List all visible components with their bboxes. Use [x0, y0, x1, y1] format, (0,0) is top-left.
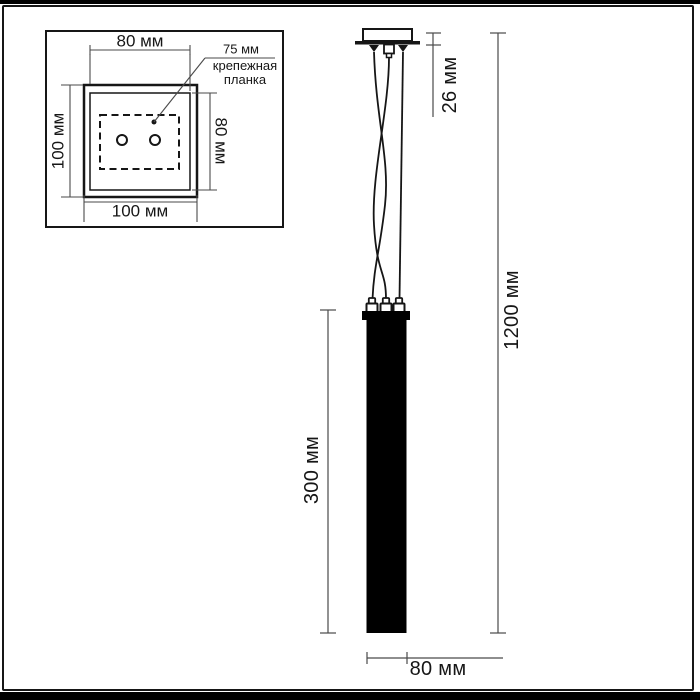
suspension-wires [373, 52, 404, 299]
canopy-height-label: 26 мм [440, 57, 460, 114]
plate-top-width-label: 80 мм [116, 33, 163, 50]
screw-hole-left [117, 135, 127, 145]
plate-left-height-label: 100 мм [50, 113, 67, 169]
lamp-shade-cylinder [362, 311, 410, 633]
shade-width-label: 80 мм [410, 659, 467, 679]
plate-inner-square [90, 93, 190, 190]
dimension-lines [320, 33, 506, 664]
mounting-plate-inset-view: 80 мм 100 мм 80 мм 100 мм 75 мм крепежна… [45, 30, 284, 228]
plate-bottom-width-label: 100 мм [112, 203, 168, 220]
cord-grip-right [398, 45, 408, 52]
bracket-name-line1: крепежная [213, 58, 277, 73]
bracket-name-line2: планка [224, 72, 266, 87]
shade-height-label: 300 мм [302, 436, 322, 504]
screw-hole-right [150, 135, 160, 145]
center-fitting [384, 45, 394, 54]
bracket-spacing-label: 75 мм [223, 43, 259, 56]
suspension-wire-right [400, 52, 404, 299]
bracket-name-label: крепежная планка [213, 59, 277, 87]
shade-wire-glands [367, 298, 405, 313]
overall-height-label: 1200 мм [502, 270, 522, 350]
lamp-dimension-diagram: { "inset": { "top_width_label": "80 мм",… [0, 0, 700, 700]
ceiling-canopy [355, 29, 420, 58]
plate-right-height-label: 80 мм [213, 117, 230, 164]
cord-grip-left [369, 45, 379, 52]
